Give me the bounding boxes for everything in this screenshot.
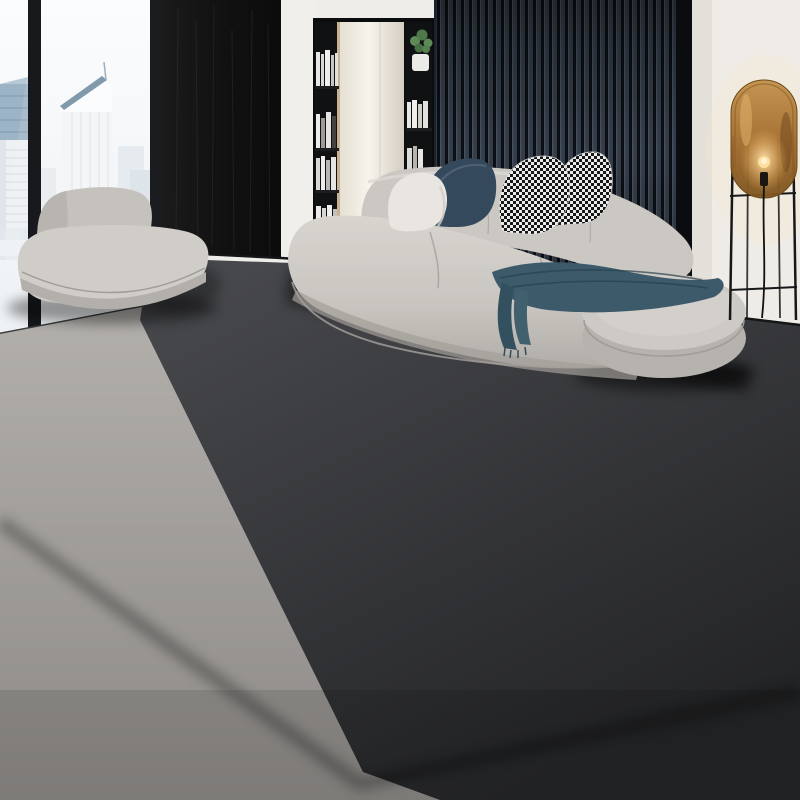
floor-lamp xyxy=(730,80,797,320)
vignette xyxy=(0,690,800,800)
pillow-houndstooth xyxy=(499,156,569,234)
living-room-photo xyxy=(0,0,800,800)
lamp-socket xyxy=(760,172,768,186)
settee xyxy=(18,187,209,309)
room-foreground xyxy=(0,0,800,800)
lamp-cord xyxy=(762,186,764,318)
